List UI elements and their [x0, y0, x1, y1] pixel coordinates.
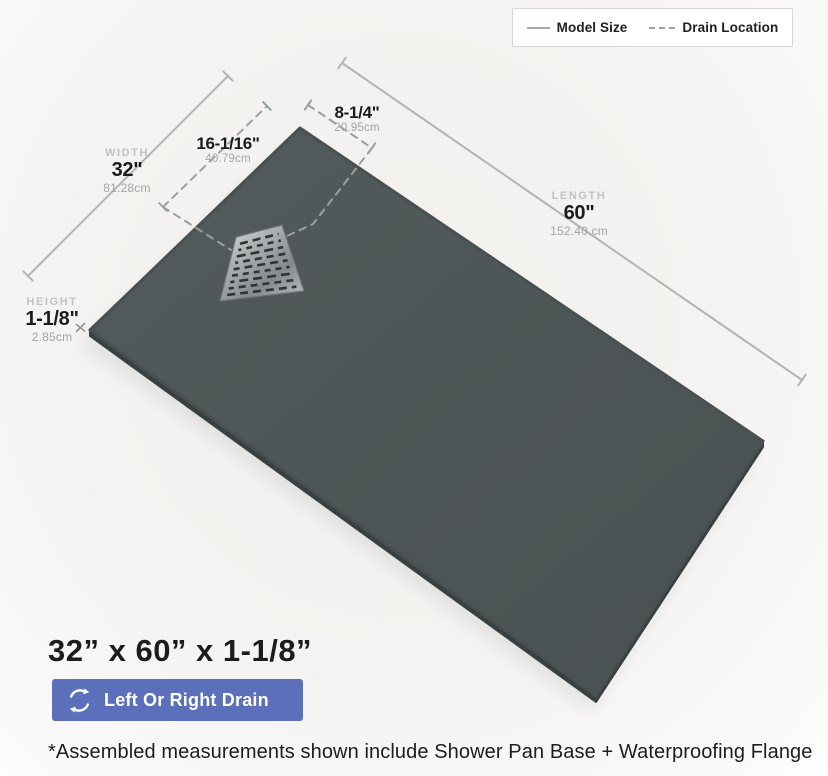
- width-label: WIDTH 32" 81.28cm: [103, 147, 150, 195]
- drain-badge: Left Or Right Drain: [52, 679, 303, 721]
- legend-drain-location-label: Drain Location: [682, 20, 778, 35]
- length-metric: 152.40 cm: [550, 225, 608, 238]
- width-name: WIDTH: [103, 147, 150, 159]
- legend-model-size-label: Model Size: [557, 20, 628, 35]
- dashed-line-swatch: [649, 27, 675, 29]
- solid-line-swatch: [527, 27, 550, 29]
- height-label: HEIGHT 1-1/8" 2.85cm: [25, 296, 78, 344]
- length-value: 60": [550, 202, 608, 224]
- height-value: 1-1/8": [25, 308, 78, 330]
- drain-offset-width-label: 16-1/16" 40.79cm: [196, 134, 259, 166]
- width-metric: 81.28cm: [103, 182, 150, 195]
- legend-drain-location: Drain Location: [649, 20, 778, 35]
- legend: Model Size Drain Location: [512, 8, 793, 47]
- length-label: LENGTH 60" 152.40 cm: [550, 190, 608, 238]
- width-value: 32": [103, 159, 150, 181]
- drain-offset-length-value: 8-1/4": [334, 103, 380, 122]
- length-name: LENGTH: [550, 190, 608, 202]
- legend-model-size: Model Size: [527, 20, 628, 35]
- drain-offset-width-metric: 40.79cm: [196, 153, 259, 166]
- drain-offset-length-metric: 20.95cm: [334, 122, 380, 135]
- rotate-icon: [66, 687, 93, 714]
- product-dimension-diagram: Model Size Drain Location WIDTH 32" 81.2…: [0, 0, 828, 776]
- drain-badge-label: Left Or Right Drain: [104, 690, 269, 711]
- drain-offset-width-value: 16-1/16": [196, 134, 259, 153]
- drain-offset-length-label: 8-1/4" 20.95cm: [334, 103, 380, 135]
- size-title: 32” x 60” x 1-1/8”: [48, 633, 312, 669]
- footnote: *Assembled measurements shown include Sh…: [48, 741, 812, 764]
- height-name: HEIGHT: [25, 296, 78, 308]
- height-metric: 2.85cm: [25, 331, 78, 344]
